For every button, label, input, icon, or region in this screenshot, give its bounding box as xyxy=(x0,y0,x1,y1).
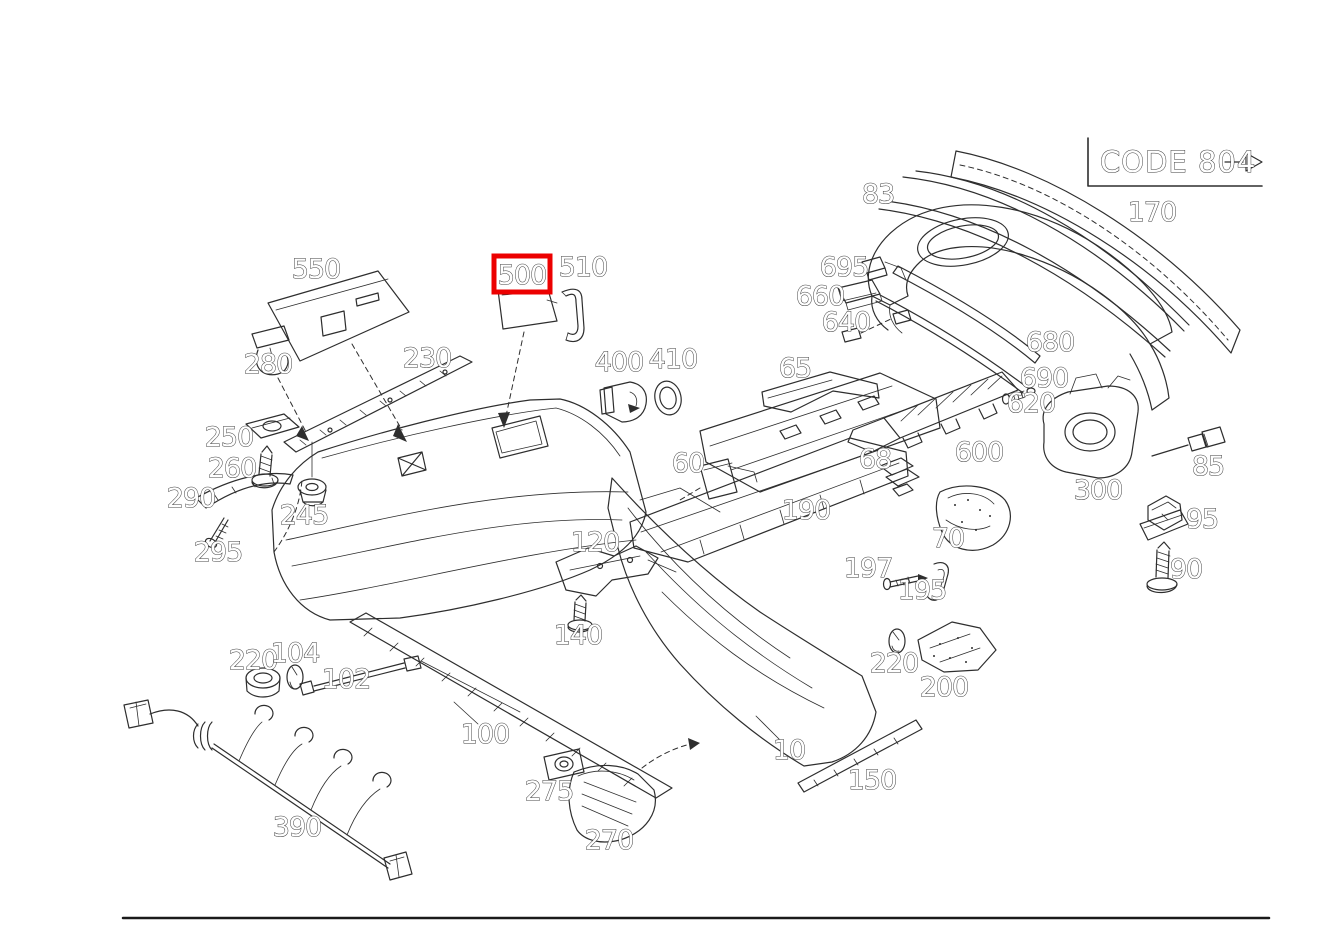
part-label-83[interactable]: 83 xyxy=(862,179,894,210)
part-label-60[interactable]: 60 xyxy=(672,448,704,479)
part-label-680[interactable]: 680 xyxy=(1026,327,1075,358)
part-660-drawing xyxy=(838,280,882,310)
part-250-drawing xyxy=(246,414,299,438)
part-500-drawing xyxy=(498,286,557,428)
part-label-120[interactable]: 120 xyxy=(571,527,620,558)
part-label-270[interactable]: 270 xyxy=(585,825,634,856)
part-label-65[interactable]: 65 xyxy=(779,353,811,384)
part-label-197[interactable]: 197 xyxy=(844,553,893,584)
part-label-410[interactable]: 410 xyxy=(649,344,698,375)
part-label-510[interactable]: 510 xyxy=(559,252,608,283)
part-label-290[interactable]: 290 xyxy=(167,483,216,514)
part-label-170[interactable]: 170 xyxy=(1128,197,1177,228)
part-label-280[interactable]: 280 xyxy=(244,349,293,380)
part-label-295[interactable]: 295 xyxy=(194,537,243,568)
part-label-640[interactable]: 640 xyxy=(822,307,871,338)
part-label-195[interactable]: 195 xyxy=(898,575,947,606)
part-label-620[interactable]: 620 xyxy=(1007,388,1056,419)
part-label-10[interactable]: 10 xyxy=(773,735,805,766)
carrier-drawing xyxy=(700,373,940,492)
part-label-95[interactable]: 95 xyxy=(1186,504,1218,535)
part-390-drawing xyxy=(124,700,412,880)
part-label-695[interactable]: 695 xyxy=(820,252,869,283)
part-label-100[interactable]: 100 xyxy=(461,719,510,750)
part-label-102[interactable]: 102 xyxy=(322,664,371,695)
part-label-300[interactable]: 300 xyxy=(1074,475,1123,506)
part-label-275[interactable]: 275 xyxy=(525,776,574,807)
part-label-104[interactable]: 104 xyxy=(271,638,320,669)
part-label-200[interactable]: 200 xyxy=(920,672,969,703)
part-label-70[interactable]: 70 xyxy=(932,523,964,554)
part-label-500[interactable]: 500 xyxy=(498,260,547,291)
part-label-68[interactable]: 68 xyxy=(859,444,891,475)
part-label-250[interactable]: 250 xyxy=(205,422,254,453)
part-label-400[interactable]: 400 xyxy=(595,347,644,378)
part-label-390[interactable]: 390 xyxy=(273,812,322,843)
part-label-190[interactable]: 190 xyxy=(782,495,831,526)
part-label-85[interactable]: 85 xyxy=(1192,451,1224,482)
part-200-drawing xyxy=(918,622,996,672)
part-label-90[interactable]: 90 xyxy=(1170,554,1202,585)
code-label: CODE 804 xyxy=(1100,145,1256,179)
part-245-drawing xyxy=(298,442,326,506)
part-95-drawing xyxy=(1140,496,1188,540)
part-label-600[interactable]: 600 xyxy=(955,437,1004,468)
part-label-220-right[interactable]: 220 xyxy=(870,648,919,679)
part-510-drawing xyxy=(562,289,584,341)
part-label-140[interactable]: 140 xyxy=(554,620,603,651)
part-410-drawing xyxy=(652,379,685,418)
part-10-drawing xyxy=(608,478,876,766)
exploded-parts-diagram: CODE 804 550 500 510 280 230 250 260 290… xyxy=(0,0,1326,938)
part-label-230[interactable]: 230 xyxy=(403,343,452,374)
part-label-245[interactable]: 245 xyxy=(280,500,329,531)
part-400-drawing xyxy=(600,382,646,422)
part-label-260[interactable]: 260 xyxy=(208,453,257,484)
part-label-150[interactable]: 150 xyxy=(848,765,897,796)
part-label-550[interactable]: 550 xyxy=(292,254,341,285)
part-100-drawing xyxy=(350,613,672,798)
